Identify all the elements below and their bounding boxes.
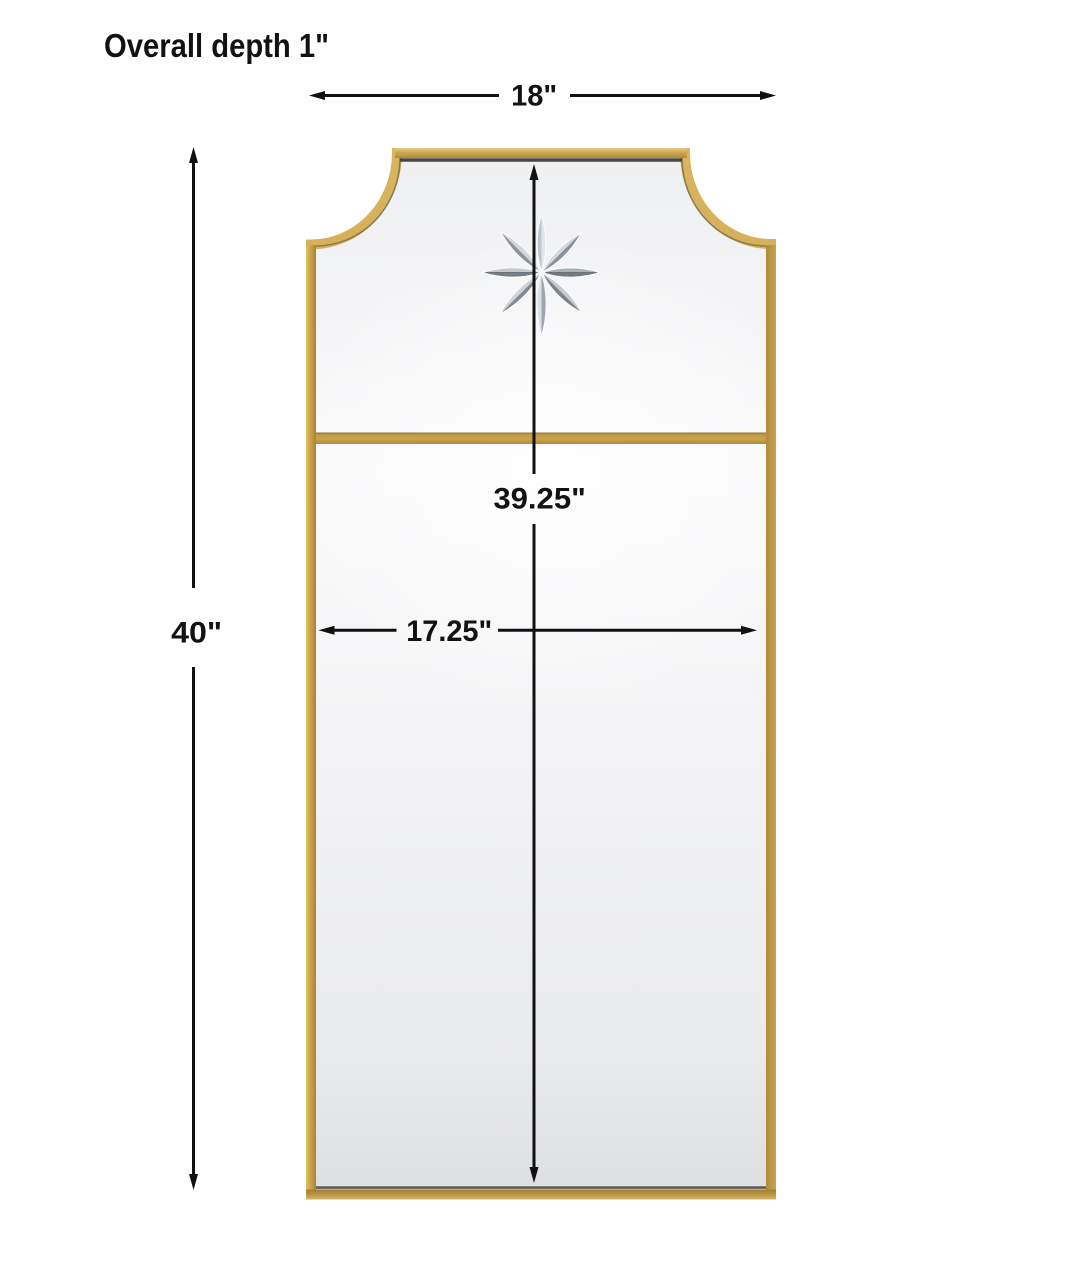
svg-text:Overall depth 1": Overall depth 1" (104, 28, 329, 65)
svg-text:17.25": 17.25" (406, 615, 492, 648)
svg-text:39.25": 39.25" (493, 483, 586, 516)
svg-text:40": 40" (171, 617, 222, 650)
svg-text:18": 18" (511, 80, 557, 113)
